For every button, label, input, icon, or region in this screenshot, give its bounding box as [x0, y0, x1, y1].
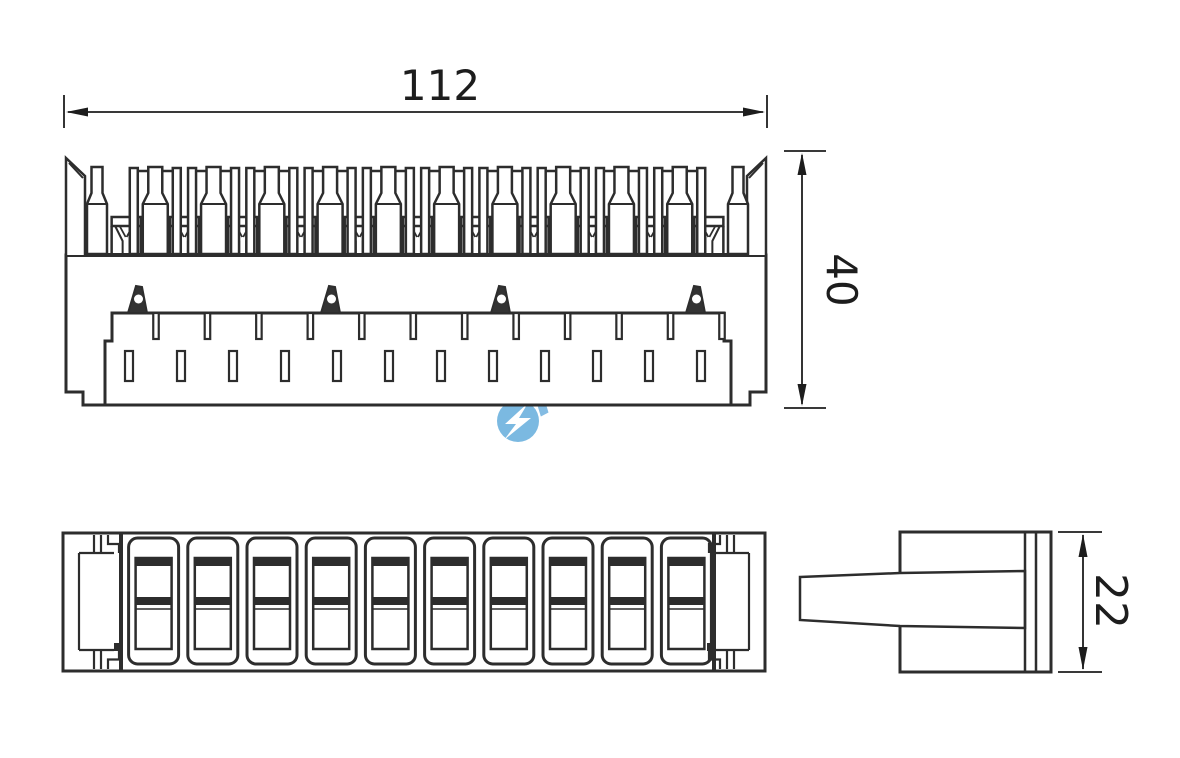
plan-slot: [188, 538, 238, 664]
plan-slot: [425, 538, 475, 664]
front-contacts: [87, 167, 748, 254]
top-slot: [308, 313, 314, 339]
top-slot: [205, 313, 211, 339]
dimension-height: 40: [784, 151, 866, 408]
mid-slot: [385, 351, 393, 381]
technical-drawing: HPXIN 112: [0, 0, 1180, 758]
plan-slot: [484, 538, 534, 664]
plan-slot: [247, 538, 297, 664]
top-slot: [256, 313, 262, 339]
front-right-flange: [747, 158, 766, 255]
top-slot: [719, 313, 725, 339]
mid-slot: [541, 351, 549, 381]
side-view: [800, 532, 1051, 672]
end-contact: [87, 167, 107, 254]
plan-slot: [129, 538, 179, 664]
technical-drawing-page: HPXIN 112: [0, 0, 1180, 758]
top-slot: [359, 313, 365, 339]
dimension-depth: 22: [1058, 532, 1136, 672]
dimension-depth-label: 22: [1085, 573, 1136, 629]
plan-view: [63, 533, 765, 671]
mid-slot: [177, 351, 185, 381]
framed-contact: [538, 167, 589, 254]
arrowhead-up: [1079, 534, 1088, 557]
framed-contact: [421, 167, 472, 254]
top-slot: [513, 313, 519, 339]
top-slot: [616, 313, 622, 339]
framed-contact: [305, 167, 356, 254]
side-tongue: [800, 571, 1025, 628]
dimension-width-label: 112: [400, 61, 480, 110]
arrowhead-down: [798, 384, 807, 406]
front-view: [65, 158, 767, 405]
top-slot: [668, 313, 674, 339]
top-slot: [411, 313, 417, 339]
plan-slot: [602, 538, 652, 664]
mid-slot: [645, 351, 653, 381]
framed-contact: [363, 167, 414, 254]
arrowhead-up: [798, 153, 807, 175]
framed-contact: [479, 167, 530, 254]
dimension-height-label: 40: [817, 253, 866, 306]
framed-contact: [188, 167, 239, 254]
arrowhead-left: [66, 108, 88, 117]
mid-slot: [229, 351, 237, 381]
mid-slot: [437, 351, 445, 381]
framed-contact: [246, 167, 297, 254]
end-contact: [728, 167, 748, 254]
arrowhead-down: [1079, 647, 1088, 670]
front-left-flange: [66, 158, 85, 255]
framed-contact: [596, 167, 647, 254]
plan-slot: [365, 538, 415, 664]
top-slot: [153, 313, 159, 339]
dimension-width: 112: [64, 61, 767, 128]
framed-contact: [130, 167, 181, 254]
top-slot: [565, 313, 571, 339]
plan-slot: [661, 538, 711, 664]
plan-slot: [543, 538, 593, 664]
mid-slot: [593, 351, 601, 381]
mid-slot: [125, 351, 133, 381]
arrowhead-right: [743, 108, 765, 117]
plan-slot: [306, 538, 356, 664]
front-inner-block: [105, 313, 731, 405]
framed-contact: [654, 167, 705, 254]
mid-slot: [281, 351, 289, 381]
mid-slot: [333, 351, 341, 381]
top-slot: [462, 313, 468, 339]
mid-slot: [489, 351, 497, 381]
mid-slot: [697, 351, 705, 381]
